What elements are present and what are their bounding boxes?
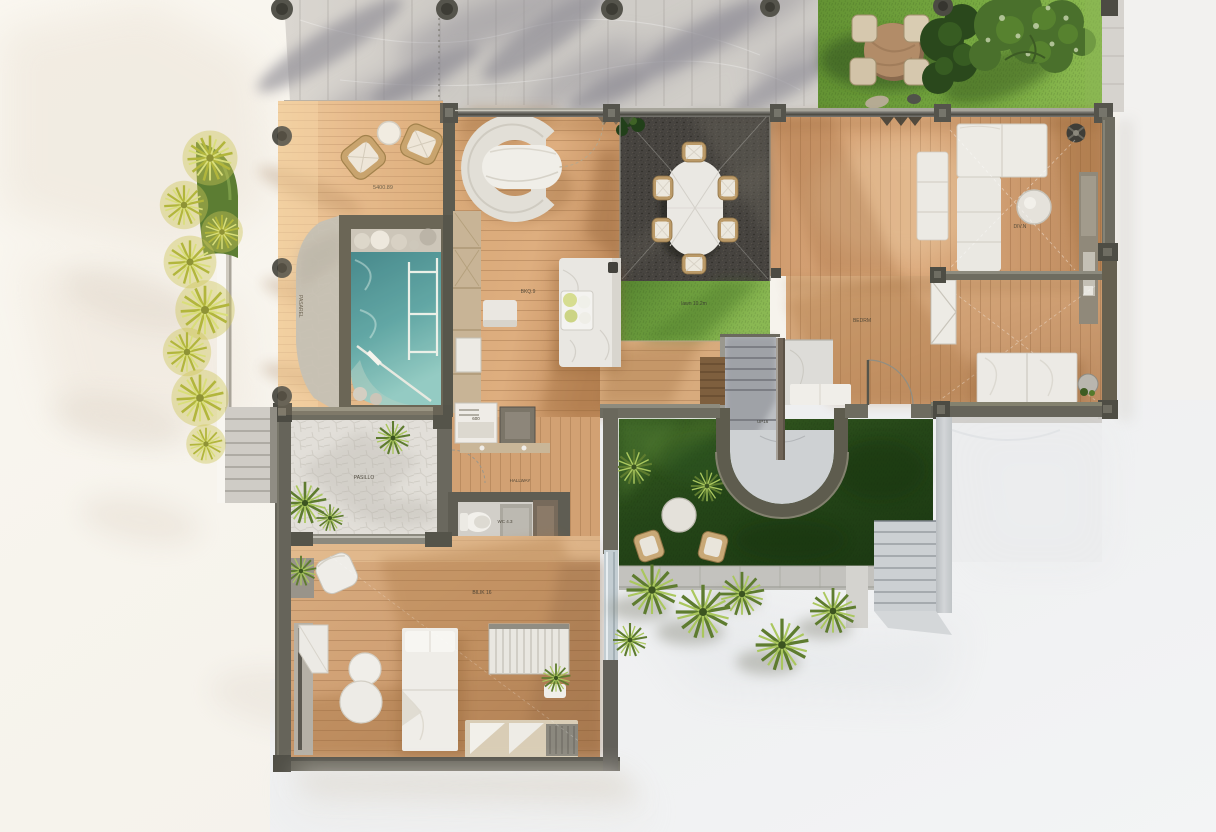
svg-text:UP16: UP16 [757,419,769,424]
svg-text:lawn 10.2m: lawn 10.2m [681,301,707,307]
svg-text:PASILLO: PASILLO [354,475,375,481]
svg-text:BKQ.9: BKQ.9 [521,289,536,295]
svg-text:HALLWAY: HALLWAY [510,478,531,483]
svg-text:600: 600 [472,416,480,421]
svg-text:BILIK 16: BILIK 16 [472,590,491,596]
svg-text:BEDRM: BEDRM [853,318,871,324]
svg-text:WC 4.3: WC 4.3 [497,519,513,524]
svg-text:DIV.N: DIV.N [1014,224,1027,230]
